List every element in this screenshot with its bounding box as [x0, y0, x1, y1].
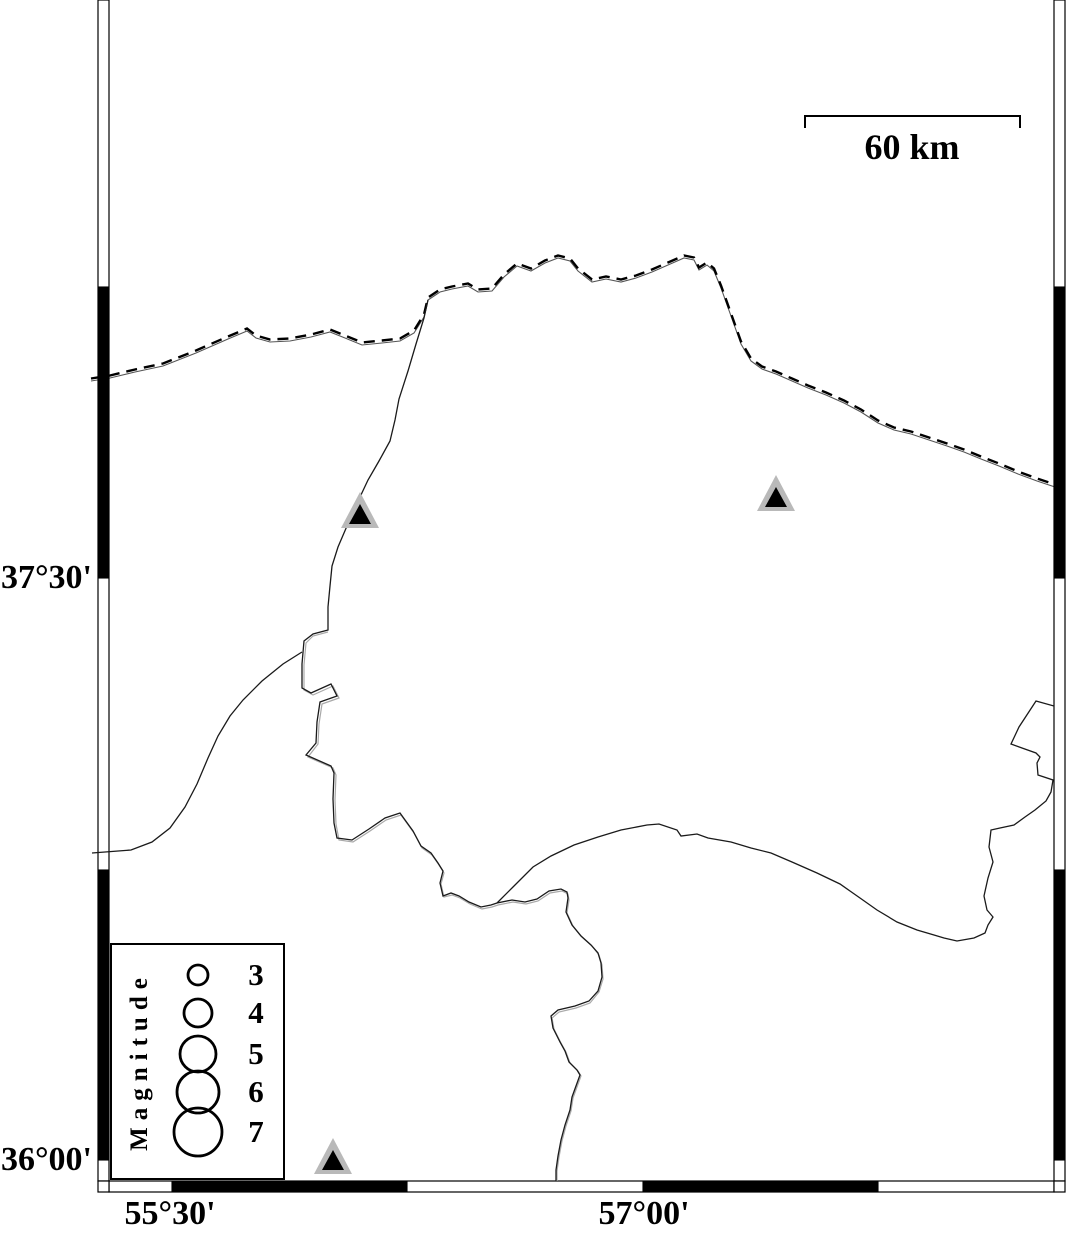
- lat-label-36-00: 36°00': [0, 1138, 92, 1182]
- legend-magnitude-label: 5: [230, 1033, 282, 1075]
- border-dashed-line: [91, 256, 1058, 486]
- lon-label-57-00: 57°00': [559, 1192, 729, 1236]
- legend-magnitude-label: 6: [230, 1071, 282, 1113]
- legend-magnitude-label: 4: [230, 992, 282, 1034]
- stations-layer: [314, 475, 795, 1174]
- river-gray-companion: [304, 632, 603, 1181]
- legend-magnitude-circle: [174, 1108, 222, 1156]
- frame-corner-right: [1054, 1181, 1065, 1192]
- scale-bar-label: 60 km: [832, 126, 992, 168]
- lon-label-55-30: 55°30': [85, 1192, 255, 1236]
- frame-corner-left: [98, 1181, 109, 1192]
- legend-magnitude-label: 3: [230, 954, 282, 996]
- legend-magnitude-label: 7: [230, 1111, 282, 1153]
- magnitude-legend: Magnitude 34567: [110, 943, 285, 1180]
- river-south-line: [497, 889, 602, 1181]
- border-solid-line: [91, 258, 1058, 488]
- coast-arc-line: [497, 701, 1054, 941]
- map-figure: 37°30' 36°00' 55°30' 57°00' 60 km Magnit…: [0, 0, 1066, 1229]
- lat-label-37-30: 37°30': [0, 556, 92, 600]
- southwest-line: [92, 652, 302, 853]
- legend-magnitude-circle: [184, 999, 212, 1027]
- legend-magnitude-circle: [180, 1036, 216, 1072]
- legend-magnitude-circle: [188, 965, 208, 985]
- border-lines: [91, 256, 1058, 489]
